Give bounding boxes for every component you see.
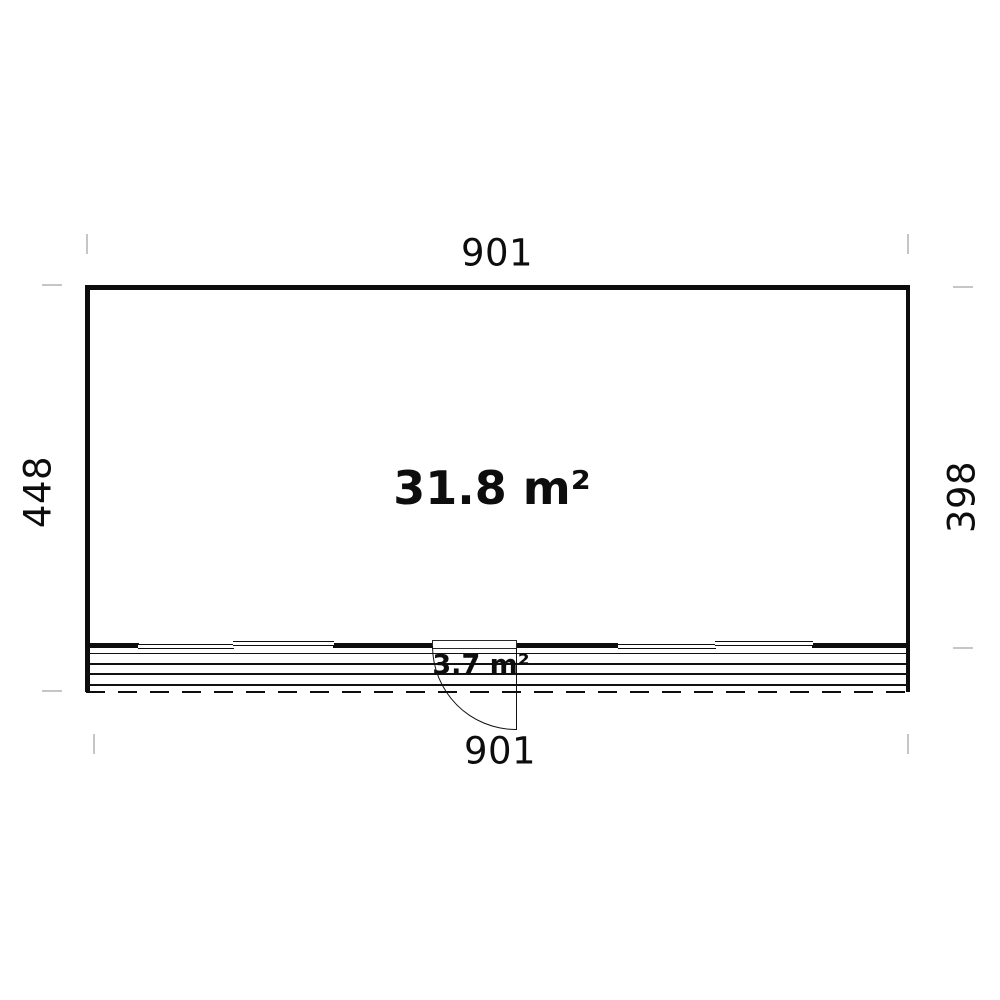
extension-tick-bottom-right bbox=[907, 734, 909, 754]
window-left-outer bbox=[138, 644, 234, 649]
front-wall-segment-1 bbox=[85, 643, 139, 648]
dimension-bottom-width: 901 bbox=[464, 730, 536, 773]
extension-tick-bottom-left bbox=[93, 734, 95, 754]
dimension-left-total-depth: 448 bbox=[17, 456, 60, 528]
wall-right bbox=[906, 285, 911, 692]
dimension-top-width: 901 bbox=[461, 232, 533, 275]
window-left-inner bbox=[233, 641, 334, 646]
front-wall-segment-2 bbox=[333, 643, 432, 648]
front-wall-segment-3 bbox=[516, 643, 618, 648]
extension-tick-right-upper bbox=[953, 286, 973, 288]
extension-tick-right-lower bbox=[953, 647, 973, 649]
window-right-inner bbox=[715, 641, 813, 646]
dimension-right-room-depth: 398 bbox=[941, 461, 984, 533]
terrace-area-label: 3.7 m² bbox=[432, 650, 529, 681]
extension-tick-left-upper bbox=[42, 284, 62, 286]
main-room-area-label: 31.8 m² bbox=[393, 461, 591, 515]
window-right-outer bbox=[618, 644, 716, 649]
front-wall-segment-4 bbox=[812, 643, 910, 648]
floor-plan-canvas: 901 448 398 901 31.8 m² 3.7 m² bbox=[0, 0, 1000, 1000]
wall-top bbox=[85, 285, 910, 290]
wall-left bbox=[85, 285, 90, 692]
extension-tick-top-left bbox=[86, 234, 88, 254]
extension-tick-left-lower bbox=[42, 690, 62, 692]
extension-tick-top-right bbox=[907, 234, 909, 254]
